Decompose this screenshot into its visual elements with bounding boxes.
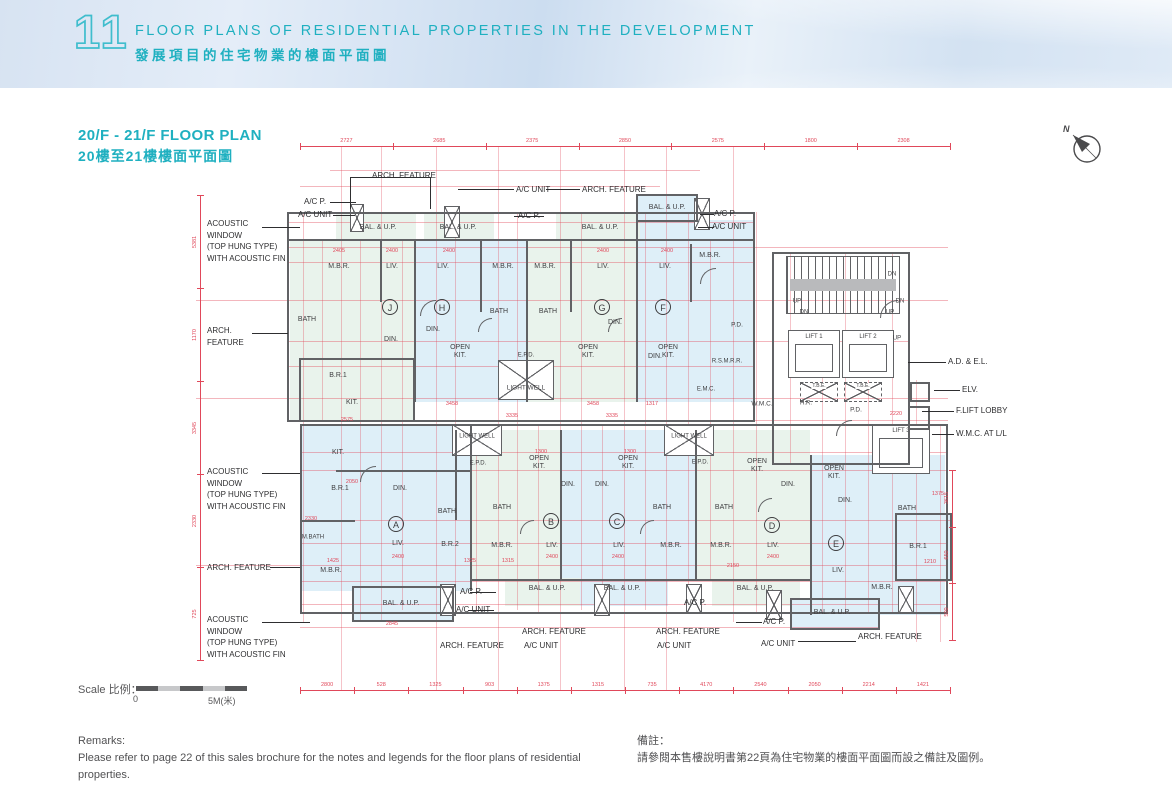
dim-value: 2150: [727, 563, 739, 569]
room-label: LIGHT WELL: [459, 434, 495, 441]
room-label: LIV.: [767, 542, 779, 550]
room-label: OPEN KIT.: [658, 344, 678, 360]
dim-tick: [463, 687, 464, 694]
dim-tick: [197, 567, 204, 568]
callout-label: A/C UNIT: [761, 638, 795, 650]
room-label: LIV.: [613, 542, 625, 550]
room-label: E.M.C.: [697, 387, 715, 394]
leader-line: [333, 215, 355, 216]
unit-badge: H: [434, 299, 450, 315]
leader-line: [430, 177, 431, 209]
scale-bar-segment: [225, 686, 247, 691]
scale-max: 5M(米): [208, 694, 236, 707]
dim-row-line: [200, 195, 201, 660]
dim-tick: [857, 143, 858, 150]
room-label: P.D.: [731, 321, 743, 328]
callout-label: ARCH. FEATURE: [582, 184, 646, 196]
dim-tick: [197, 195, 204, 196]
callout-label: A/C UNIT: [712, 221, 746, 233]
room-label: B.R.1: [329, 372, 347, 380]
dim-tick: [733, 687, 734, 694]
room-label: BATH: [493, 504, 511, 512]
leader-line: [468, 610, 494, 611]
unit-badge: F: [655, 299, 671, 315]
room-label: E.P.D.: [470, 461, 487, 468]
room-label: DN: [888, 272, 897, 279]
callout-label: ARCH. FEATURE: [858, 631, 922, 643]
dim-tick: [949, 583, 956, 584]
room-label: M.B.R.: [660, 542, 681, 550]
room-label: B.R.2: [441, 541, 459, 549]
callout-label: ARCH. FEATURE: [522, 626, 586, 638]
callout-label: ACOUSTIC WINDOW (TOP HUNG TYPE) WITH ACO…: [207, 218, 286, 264]
dim-value: 528: [377, 682, 386, 688]
unit-badge: A: [388, 516, 404, 532]
room-label: BAL. & U.P.: [814, 609, 850, 617]
dim-tick: [571, 687, 572, 694]
room-label: LIGHT WELL: [671, 434, 707, 441]
dim-value: 2400: [661, 248, 673, 254]
dim-tick: [300, 143, 301, 150]
room-label: LIV.: [437, 263, 449, 271]
room-label: R.S.M.R.R.: [712, 359, 742, 366]
room-label: E.P.D.: [692, 460, 709, 467]
leader-line: [270, 567, 300, 568]
scale-bar-segment: [203, 686, 225, 691]
room-label: BATH: [298, 316, 316, 324]
leader-line: [262, 473, 300, 474]
dim-value: 2308: [897, 138, 909, 144]
room-label: M.B.R.: [871, 584, 892, 592]
dim-tick: [517, 687, 518, 694]
dim-tick: [408, 687, 409, 694]
dim-row-line: [300, 146, 950, 147]
leader-line: [698, 227, 714, 228]
callout-label: ARCH. FEATURE: [207, 562, 271, 574]
room-label: LIV.: [386, 263, 398, 271]
leader-line: [350, 177, 430, 178]
room-label: LIV.: [597, 263, 609, 271]
room-label: OPEN KIT.: [824, 465, 844, 481]
leader-line: [514, 216, 544, 217]
dim-value: 500: [944, 607, 950, 616]
room-label: BATH: [715, 504, 733, 512]
room-label: BAL. & U.P.: [383, 600, 419, 608]
callout-label: A/C P.: [304, 196, 326, 208]
scale-zero: 0: [133, 694, 138, 704]
room-label: M.B.R.: [328, 263, 349, 271]
room-label: UP: [886, 310, 894, 317]
room-label: DIN.: [426, 326, 440, 334]
dim-value: 2214: [863, 682, 875, 688]
floor-plan-drawing: LIFT 1LIFT 2LIFT 3T.B.E.T.B.E.BAL. & U.P…: [0, 0, 1172, 799]
room-label: BAL. & U.P.: [529, 585, 565, 593]
dim-tick: [949, 527, 956, 528]
leader-line: [908, 362, 946, 363]
leader-line: [262, 227, 300, 228]
room-label: LIV.: [832, 567, 844, 575]
room-label: DIN.: [838, 497, 852, 505]
dim-value: 2575: [712, 138, 724, 144]
dim-value: 2540: [754, 682, 766, 688]
room-label: BAL. & U.P.: [440, 224, 476, 232]
callout-label: A/C P.: [763, 616, 785, 628]
dim-tick: [393, 143, 394, 150]
dim-value: 2685: [433, 138, 445, 144]
room-label: LIGHT WELL: [507, 384, 546, 391]
room-label: M.B.R.: [492, 263, 513, 271]
room-label: W.M.C.: [751, 400, 772, 407]
dim-value: 2400: [546, 554, 558, 560]
callout-label: ELV.: [962, 384, 978, 396]
dim-tick: [300, 687, 301, 694]
remarks-en-title: Remarks:: [78, 733, 623, 750]
dim-value: 2405: [333, 248, 345, 254]
dim-value: 2400: [392, 554, 404, 560]
leader-line: [934, 390, 960, 391]
callout-label: A/C P.: [714, 208, 736, 220]
dim-value: 1210: [924, 559, 936, 565]
dim-value: 2330: [192, 514, 198, 526]
dim-value: 2375: [526, 138, 538, 144]
unit-badge: G: [594, 299, 610, 315]
callout-label: A/C UNIT: [657, 640, 691, 652]
dim-tick: [949, 470, 956, 471]
dim-value: 2400: [767, 554, 779, 560]
room-label: DIN.: [781, 481, 795, 489]
room-label: OPEN KIT.: [450, 344, 470, 360]
room-label: BATH: [539, 308, 557, 316]
unit-badge: J: [382, 299, 398, 315]
dim-value: 1375: [538, 682, 550, 688]
dim-value: 3458: [446, 401, 458, 407]
room-label: DN: [896, 299, 905, 306]
remarks-zh-title: 備註：: [637, 733, 1137, 750]
room-label: M.B.R.: [699, 252, 720, 260]
callout-label: A/C UNIT: [524, 640, 558, 652]
room-label: M.B.R.: [534, 263, 555, 271]
room-label: LIV.: [546, 542, 558, 550]
dim-tick: [950, 687, 951, 694]
leader-line: [736, 622, 762, 623]
callout-label: A/C P.: [684, 597, 706, 609]
dim-value: 1315: [592, 682, 604, 688]
room-label: BAL. & U.P.: [360, 224, 396, 232]
room-label: M.B.R.: [320, 567, 341, 575]
leader-line: [470, 592, 496, 593]
dim-value: 3345: [192, 421, 198, 433]
dim-tick: [950, 143, 951, 150]
dim-value: 2050: [808, 682, 820, 688]
dim-value: 1800: [805, 138, 817, 144]
room-label: DIN.: [608, 319, 622, 327]
dim-tick: [197, 660, 204, 661]
dim-value: 2050: [346, 479, 358, 485]
room-label: OPEN KIT.: [747, 458, 767, 474]
wall-outline: [299, 358, 415, 422]
dim-tick: [354, 687, 355, 694]
room-label: BAL. & U.P.: [604, 585, 640, 593]
dim-value: 1300: [535, 449, 547, 455]
room-label: OPEN KIT.: [529, 455, 549, 471]
dim-value: 2400: [443, 248, 455, 254]
leader-line: [798, 641, 856, 642]
dim-tick: [896, 687, 897, 694]
dim-tick: [671, 143, 672, 150]
dim-tick: [679, 687, 680, 694]
room-label: BATH: [490, 308, 508, 316]
dim-tick: [949, 640, 956, 641]
room-label: DIN.: [384, 336, 398, 344]
leader-line: [932, 434, 954, 435]
dim-tick: [764, 143, 765, 150]
dim-value: 1425: [327, 558, 339, 564]
room-label: DN: [800, 310, 809, 317]
room-label: BAL. & U.P.: [649, 204, 685, 212]
dim-value: 2845: [386, 621, 398, 627]
brochure-page: 11 FLOOR PLANS OF RESIDENTIAL PROPERTIES…: [0, 0, 1172, 799]
dim-value: 3335: [506, 413, 518, 419]
leader-line: [252, 333, 288, 334]
callout-label: ARCH. FEATURE: [207, 325, 244, 348]
callout-label: A.D. & E.L.: [948, 356, 988, 368]
dim-value: 2220: [890, 411, 902, 417]
dim-value: 1315: [502, 558, 514, 564]
wall-outline: [908, 406, 930, 430]
dim-value: 725: [192, 609, 198, 618]
room-label: KIT.: [332, 449, 344, 457]
room-label: B.R.1: [331, 485, 349, 493]
dim-value: 1375: [932, 491, 944, 497]
room-label: UP: [893, 336, 901, 343]
dim-value: 4170: [700, 682, 712, 688]
dim-value: 1300: [624, 449, 636, 455]
remarks-en: Remarks: Please refer to page 22 of this…: [78, 733, 623, 784]
unit-badge: B: [543, 513, 559, 529]
dim-value: 2400: [597, 248, 609, 254]
room-label: UP: [793, 299, 801, 306]
room-label: M.BATH: [302, 535, 324, 542]
room-label: M.B.R.: [491, 542, 512, 550]
remarks-zh-body: 請參閱本售樓說明書第22頁為住宅物業的樓面平面圖而設之備註及圖例。: [637, 750, 1137, 767]
room-label: DIN.: [561, 481, 575, 489]
dim-value: 2400: [612, 554, 624, 560]
dim-value: 1317: [646, 401, 658, 407]
room-label: P.D.: [850, 406, 862, 413]
leader-line: [922, 411, 954, 412]
dim-value: 903: [485, 682, 494, 688]
leader-line: [546, 189, 580, 190]
wall-outline: [910, 382, 930, 402]
unit-badge: E: [828, 535, 844, 551]
dim-value: 650: [944, 550, 950, 559]
dim-value: 5381: [192, 235, 198, 247]
room-label: BATH: [653, 504, 671, 512]
callout-label: ARCH. FEATURE: [372, 170, 436, 182]
dim-value: 3615: [944, 492, 950, 504]
scale-bar: [136, 686, 247, 691]
dim-value: 2850: [619, 138, 631, 144]
dim-tick: [625, 687, 626, 694]
room-label: BAL. & U.P.: [582, 224, 618, 232]
room-label: DIN.: [595, 481, 609, 489]
dim-value: 1325: [464, 558, 476, 564]
room-label: KIT.: [346, 399, 358, 407]
room-label: LIV.: [392, 540, 404, 548]
leader-line: [262, 622, 310, 623]
callout-label: ARCH. FEATURE: [440, 640, 504, 652]
scale-bar-segment: [158, 686, 180, 691]
room-label: DIN.: [393, 485, 407, 493]
scale-bar-segment: [180, 686, 202, 691]
room-label: BATH: [898, 505, 916, 513]
leader-line: [458, 189, 514, 190]
dim-value: 1325: [429, 682, 441, 688]
dim-tick: [197, 474, 204, 475]
callout-label: A/C UNIT: [298, 209, 332, 221]
leader-line: [700, 214, 714, 215]
unit-badge: D: [764, 517, 780, 533]
remarks-en-body: Please refer to page 22 of this sales br…: [78, 750, 623, 784]
callout-label: ACOUSTIC WINDOW (TOP HUNG TYPE) WITH ACO…: [207, 614, 286, 660]
dim-value: 735: [647, 682, 656, 688]
dim-value: 2575: [341, 417, 353, 423]
dim-value: 2330: [305, 516, 317, 522]
dim-tick: [197, 381, 204, 382]
room-label: B.R.1: [909, 543, 927, 551]
room-label: BATH: [438, 508, 456, 516]
callout-label: F.LIFT LOBBY: [956, 405, 1007, 417]
room-label: H.R.: [800, 401, 812, 408]
dim-value: 2727: [340, 138, 352, 144]
dim-tick: [486, 143, 487, 150]
leader-line: [330, 202, 356, 203]
dim-tick: [579, 143, 580, 150]
dim-value: 2400: [386, 248, 398, 254]
room-label: BAL. & U.P.: [737, 585, 773, 593]
dim-value: 3335: [606, 413, 618, 419]
remarks-zh: 備註： 請參閱本售樓說明書第22頁為住宅物業的樓面平面圖而設之備註及圖例。: [637, 733, 1137, 767]
dim-value: 1421: [917, 682, 929, 688]
scale-bar-segment: [136, 686, 158, 691]
room-label: LIV.: [659, 263, 671, 271]
dim-value: 2800: [321, 682, 333, 688]
dim-row-line: [952, 470, 953, 640]
dim-tick: [842, 687, 843, 694]
dim-value: 1170: [192, 329, 198, 341]
room-label: OPEN KIT.: [618, 455, 638, 471]
room-label: OPEN KIT.: [578, 344, 598, 360]
dim-value: 3458: [587, 401, 599, 407]
dim-tick: [197, 288, 204, 289]
callout-label: ARCH. FEATURE: [656, 626, 720, 638]
dim-tick: [788, 687, 789, 694]
room-label: E.P.D.: [518, 353, 535, 360]
room-label: M.B.R.: [710, 542, 731, 550]
unit-badge: C: [609, 513, 625, 529]
leader-line: [350, 177, 351, 209]
callout-label: W.M.C. AT L/L: [956, 428, 1007, 440]
